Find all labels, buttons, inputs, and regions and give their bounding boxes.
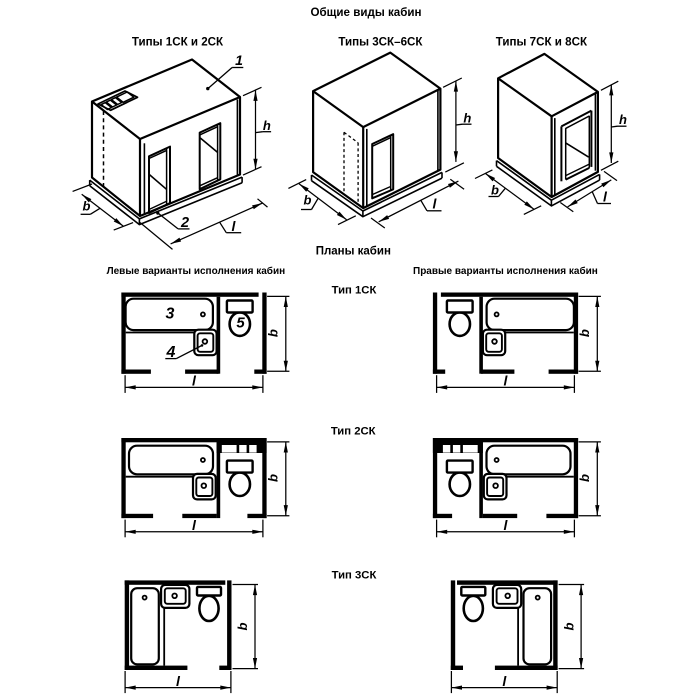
svg-text:h: h	[263, 118, 271, 133]
svg-text:Тип 2СК: Тип 2СК	[331, 425, 376, 437]
svg-text:Тип 1СК: Тип 1СК	[332, 284, 377, 296]
svg-text:Правые варианты исполнения каб: Правые варианты исполнения кабин	[413, 265, 598, 277]
svg-text:Типы 7СК и 8СК: Типы 7СК и 8СК	[496, 36, 588, 49]
svg-text:Общие виды кабин: Общие виды кабин	[310, 6, 421, 19]
svg-text:b: b	[577, 474, 592, 482]
svg-text:h: h	[619, 112, 627, 127]
svg-text:1: 1	[235, 52, 243, 68]
svg-text:3: 3	[166, 306, 175, 323]
svg-text:b: b	[83, 199, 91, 214]
svg-text:b: b	[561, 622, 576, 630]
svg-text:Планы кабин: Планы кабин	[316, 246, 391, 258]
svg-text:Тип 3СК: Тип 3СК	[332, 569, 377, 581]
svg-text:b: b	[491, 183, 499, 198]
svg-text:b: b	[235, 622, 250, 630]
svg-text:b: b	[304, 193, 312, 208]
svg-text:5: 5	[236, 314, 245, 331]
svg-text:Левые варианты исполнения каби: Левые варианты исполнения кабин	[107, 265, 286, 277]
svg-text:Типы 1СК и 2СК: Типы 1СК и 2СК	[132, 36, 224, 49]
svg-text:b: b	[266, 329, 281, 337]
svg-text:h: h	[463, 111, 471, 126]
svg-text:b: b	[266, 474, 281, 482]
svg-text:b: b	[577, 329, 592, 337]
svg-text:Типы 3СК–6СК: Типы 3СК–6СК	[338, 36, 423, 49]
